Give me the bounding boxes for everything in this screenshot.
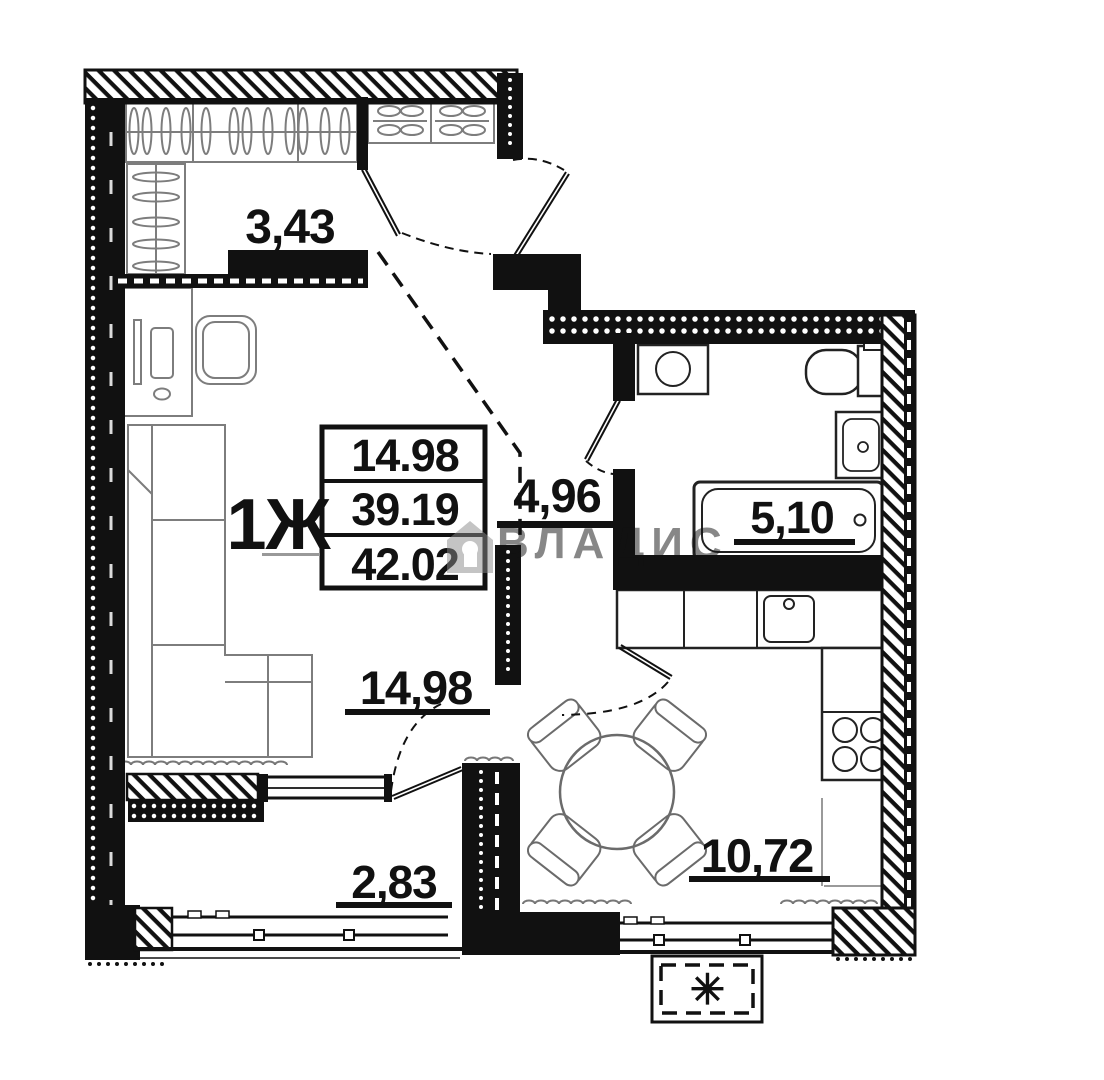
- living-area-label: 14,98: [360, 661, 473, 714]
- ac-unit-icon: ✳: [690, 966, 724, 1013]
- office-chair: [196, 316, 256, 384]
- sofa: [128, 425, 312, 757]
- info-area-value: 39.19: [351, 484, 459, 535]
- floor-plan: ✳ 14.98 39.19 42.02 1Ж 3,43 4,96 5,10 14…: [0, 0, 1104, 1080]
- living-balcony-window: [267, 777, 384, 798]
- bathroom-door: [585, 399, 620, 474]
- entrance-door: [513, 159, 569, 259]
- wardrobe-door: [362, 168, 491, 254]
- balcony-door: [391, 704, 463, 799]
- bottom-wall-mid: [462, 912, 620, 955]
- radiator-kitchen-right: [781, 901, 877, 904]
- ac-unit: ✳: [652, 956, 762, 1022]
- balcony-area-label: 2,83: [351, 856, 437, 908]
- dining-table: [560, 735, 674, 849]
- hall-area-label: 4,96: [513, 469, 600, 522]
- toilet: [806, 346, 885, 396]
- bottom-right-corner: [833, 908, 915, 955]
- shelf-column: [127, 164, 185, 274]
- system-unit-icon: [151, 328, 173, 378]
- washing-machine: [638, 345, 708, 394]
- balcony-glazing: [135, 911, 462, 958]
- bathroom-left-wall-upper: [613, 333, 635, 401]
- dining-chairs: [525, 696, 710, 888]
- radiator-living-small: [465, 758, 513, 762]
- apartment-type-underline: [262, 553, 320, 556]
- bathroom-top-wall: [543, 310, 915, 344]
- wardrobe-shelf-cells: [368, 98, 494, 143]
- mouse-icon: [154, 389, 170, 400]
- bathroom-area-label: 5,10: [750, 492, 834, 543]
- radiator-kitchen-left: [523, 901, 631, 904]
- floor-plan-drawing: ✳ 14.98 39.19 42.02 1Ж 3,43 4,96 5,10 14…: [0, 0, 1104, 1080]
- kitchen-area-label: 10,72: [701, 829, 814, 882]
- info-total-area-value: 42.02: [351, 539, 459, 590]
- bathroom-sink: [836, 412, 886, 478]
- info-living-area-value: 14.98: [351, 430, 459, 481]
- wardrobe-area-label: 3,43: [245, 201, 334, 254]
- bottom-left-corner: [85, 905, 140, 960]
- left-wall: [85, 70, 125, 955]
- monitor-icon: [134, 320, 141, 384]
- watermark-text: ВЛАДИС: [497, 519, 729, 568]
- desk: [123, 288, 192, 416]
- watermark: ВЛАДИС: [447, 519, 729, 573]
- kitchen-window: [617, 917, 833, 952]
- wardrobe-divider-wall: [357, 97, 368, 170]
- balcony-wall-insulation: [128, 800, 264, 822]
- wardrobe-hanger-rack: [126, 102, 357, 162]
- balcony-wall-hatch: [127, 774, 258, 800]
